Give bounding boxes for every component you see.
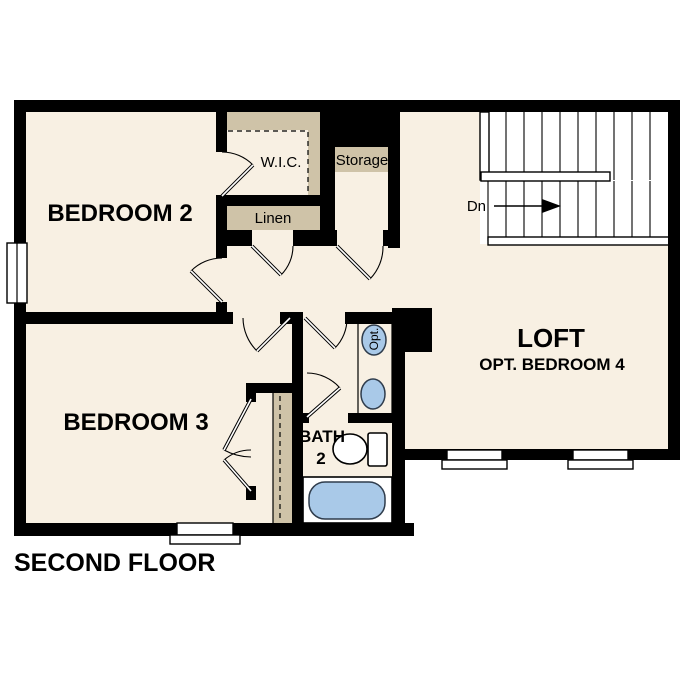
- wall-bath-east: [392, 352, 405, 536]
- wall-bedroom-divider: [14, 312, 233, 324]
- loft-sublabel: OPT. BEDROOM 4: [479, 355, 625, 374]
- bathtub: [309, 482, 385, 519]
- chase-block: [392, 308, 432, 352]
- linen-label: Linen: [255, 210, 292, 227]
- wic-shelf-top: [227, 112, 320, 130]
- wall-bath-west: [292, 312, 303, 536]
- floor-plan-page: Dn Opt.: [0, 0, 687, 687]
- plan-title: SECOND FLOOR: [14, 549, 215, 577]
- window-loft-1: [442, 450, 507, 469]
- loft-label: LOFT: [517, 323, 585, 353]
- sink: [361, 379, 385, 409]
- bedroom2-label: BEDROOM 2: [47, 200, 192, 227]
- bedroom3-label: BEDROOM 3: [63, 409, 208, 436]
- wic-label: W.I.C.: [261, 154, 302, 171]
- wall-above-vanity: [345, 312, 392, 324]
- window-left: [7, 243, 27, 303]
- wall-bath-inner-b: [348, 413, 392, 423]
- bath-label-line2: 2: [316, 449, 325, 468]
- wall-right: [668, 100, 680, 460]
- window-bedroom3: [170, 523, 240, 544]
- wall-hall-north-a: [216, 230, 252, 246]
- staircase: Dn: [467, 112, 678, 245]
- optional-sink-label: Opt.: [367, 328, 381, 351]
- stair-rail-left: [480, 112, 489, 180]
- toilet-tank: [368, 433, 387, 466]
- stair-rail-bottom: [488, 237, 678, 245]
- wall-bedroom2-east-a: [216, 112, 227, 152]
- wic-shelf-right: [308, 130, 320, 195]
- wall-bedroom2-east-c: [216, 302, 227, 324]
- stairs-down-label: Dn: [467, 198, 486, 215]
- wall-top: [14, 100, 680, 112]
- bath-label-line1: BATH: [299, 427, 345, 446]
- wall-loft-bottom: [398, 449, 680, 460]
- bedroom3-closet-shelf: [273, 393, 292, 523]
- wall-wic-south: [216, 195, 330, 206]
- floor-plan-svg: Dn Opt.: [0, 0, 687, 687]
- stair-rail-middle: [481, 172, 610, 181]
- window-loft-2: [568, 450, 633, 469]
- chase-above-storage: [320, 112, 400, 147]
- storage-label: Storage: [336, 152, 389, 169]
